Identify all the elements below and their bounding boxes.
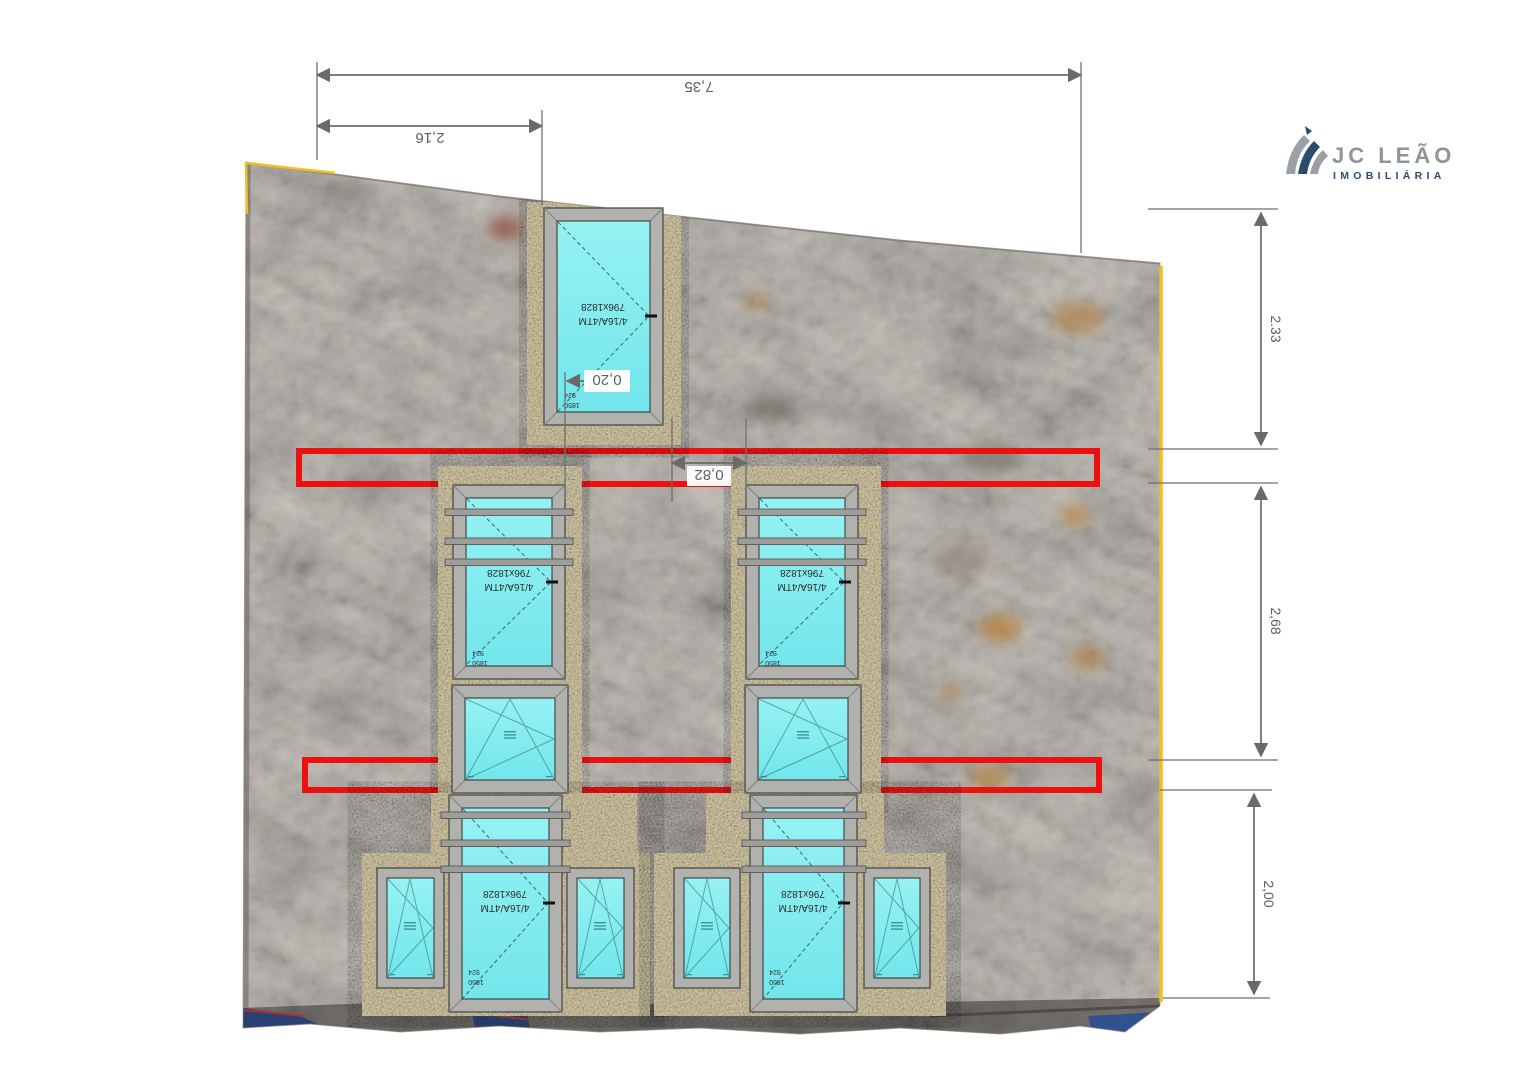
frame-width-note: 924 bbox=[564, 391, 576, 398]
corner-mark bbox=[723, 974, 728, 975]
spec-text-block bbox=[404, 922, 416, 930]
corner-mark bbox=[913, 974, 918, 975]
window-glass bbox=[387, 878, 434, 978]
window-mid-left-lower bbox=[452, 685, 568, 793]
dim-upper-height: 2.33 bbox=[1148, 209, 1284, 449]
dim-lower-height: 2,00 bbox=[1160, 790, 1277, 998]
company-logo: JC LEÃO IMOBILIÁRIA bbox=[1286, 126, 1455, 182]
frame-width-note: 924 bbox=[769, 968, 781, 975]
elevation-drawing: 796x1828 4/16A/4TM 924 1850 796x1828 4/1… bbox=[0, 0, 1528, 1080]
window-bottom-left-flank-right bbox=[567, 868, 634, 988]
spec-text-block bbox=[701, 922, 713, 930]
window-spec-glazing: 4/16A/4TM bbox=[779, 902, 828, 913]
dim-jamb-offset-label: 0,20 bbox=[592, 371, 621, 388]
spec-text-block bbox=[891, 922, 903, 930]
window-spec-glazing: 4/16A/4TM bbox=[579, 315, 628, 326]
window-bottom-left-flank-left bbox=[377, 868, 444, 988]
window-top-center: 796x1828 4/16A/4TM 924 1850 bbox=[544, 208, 663, 425]
spec-text-block bbox=[504, 731, 516, 739]
dim-upper-height-label: 2.33 bbox=[1268, 315, 1284, 342]
dim-middle-height-label: 2,68 bbox=[1268, 607, 1284, 634]
dim-lower-height-label: 2,00 bbox=[1261, 880, 1277, 907]
frame-height-note: 1850 bbox=[765, 659, 781, 666]
corner-mark bbox=[390, 974, 395, 975]
frame-width-note: 924 bbox=[468, 968, 480, 975]
corner-mark bbox=[468, 776, 474, 777]
corner-mark bbox=[839, 776, 845, 777]
window-glass bbox=[758, 698, 848, 780]
corner-mark bbox=[877, 974, 882, 975]
window-spec-size: 796x1828 bbox=[581, 301, 625, 312]
window-bottom-right-flank-right bbox=[864, 868, 930, 988]
spec-text-block bbox=[594, 922, 606, 930]
frame-height-note: 1850 bbox=[468, 978, 484, 985]
logo-tagline-text: IMOBILIÁRIA bbox=[1333, 169, 1446, 182]
window-spec-glazing: 4/16A/4TM bbox=[481, 902, 530, 913]
corner-mark bbox=[761, 776, 767, 777]
dim-window-gap-label: 0,82 bbox=[694, 466, 723, 483]
frame-height-note: 1850 bbox=[564, 401, 580, 408]
window-glass bbox=[874, 878, 920, 978]
logo-mark-icon bbox=[1286, 126, 1328, 174]
logo-brand-text: JC LEÃO bbox=[1332, 143, 1455, 168]
frame-height-note: 1850 bbox=[769, 978, 785, 985]
corner-mark bbox=[546, 776, 552, 777]
frame-width-note: 924 bbox=[472, 649, 484, 656]
corner-mark bbox=[687, 974, 692, 975]
window-spec-size: 796x1828 bbox=[483, 888, 527, 899]
window-spec-size: 796x1828 bbox=[487, 567, 531, 578]
frame-width-note: 924 bbox=[765, 649, 777, 656]
dim-middle-height: 2,68 bbox=[1148, 483, 1284, 760]
corner-mark bbox=[427, 974, 432, 975]
window-spec-size: 796x1828 bbox=[781, 888, 825, 899]
spec-text-block bbox=[797, 731, 809, 739]
window-glass bbox=[577, 878, 624, 978]
window-spec-glazing: 4/16A/4TM bbox=[485, 581, 534, 592]
window-glass bbox=[684, 878, 730, 978]
window-bottom-right-flank-left bbox=[674, 868, 740, 988]
window-spec-glazing: 4/16A/4TM bbox=[778, 581, 827, 592]
window-bottom-right-center: 796x1828 4/16A/4TM 924 1850 bbox=[750, 795, 857, 1012]
window-glass bbox=[465, 698, 555, 780]
elevation-page: 796x1828 4/16A/4TM 924 1850 796x1828 4/1… bbox=[0, 0, 1528, 1080]
window-mid-right-lower bbox=[745, 685, 861, 793]
dim-left-segment-label: 2,16 bbox=[415, 129, 444, 146]
corner-mark bbox=[617, 974, 622, 975]
dim-overall-width-label: 7,35 bbox=[684, 78, 713, 95]
window-spec-size: 796x1828 bbox=[780, 567, 824, 578]
corner-mark bbox=[580, 974, 585, 975]
window-bottom-left-center: 796x1828 4/16A/4TM 924 1850 bbox=[449, 795, 562, 1012]
frame-height-note: 1850 bbox=[472, 659, 488, 666]
